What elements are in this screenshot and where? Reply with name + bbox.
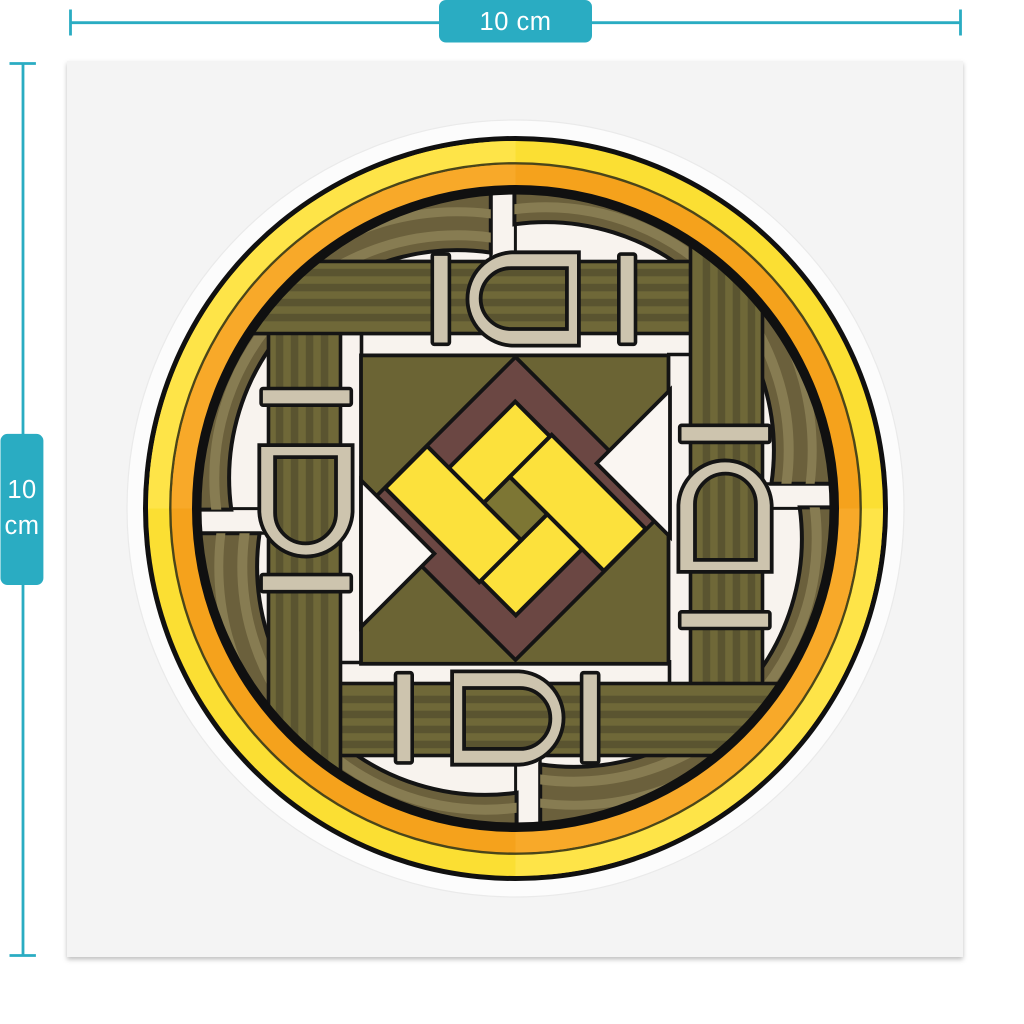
svg-text:cm: cm	[5, 512, 40, 540]
svg-text:10: 10	[7, 476, 36, 504]
svg-text:10 cm: 10 cm	[480, 8, 552, 36]
